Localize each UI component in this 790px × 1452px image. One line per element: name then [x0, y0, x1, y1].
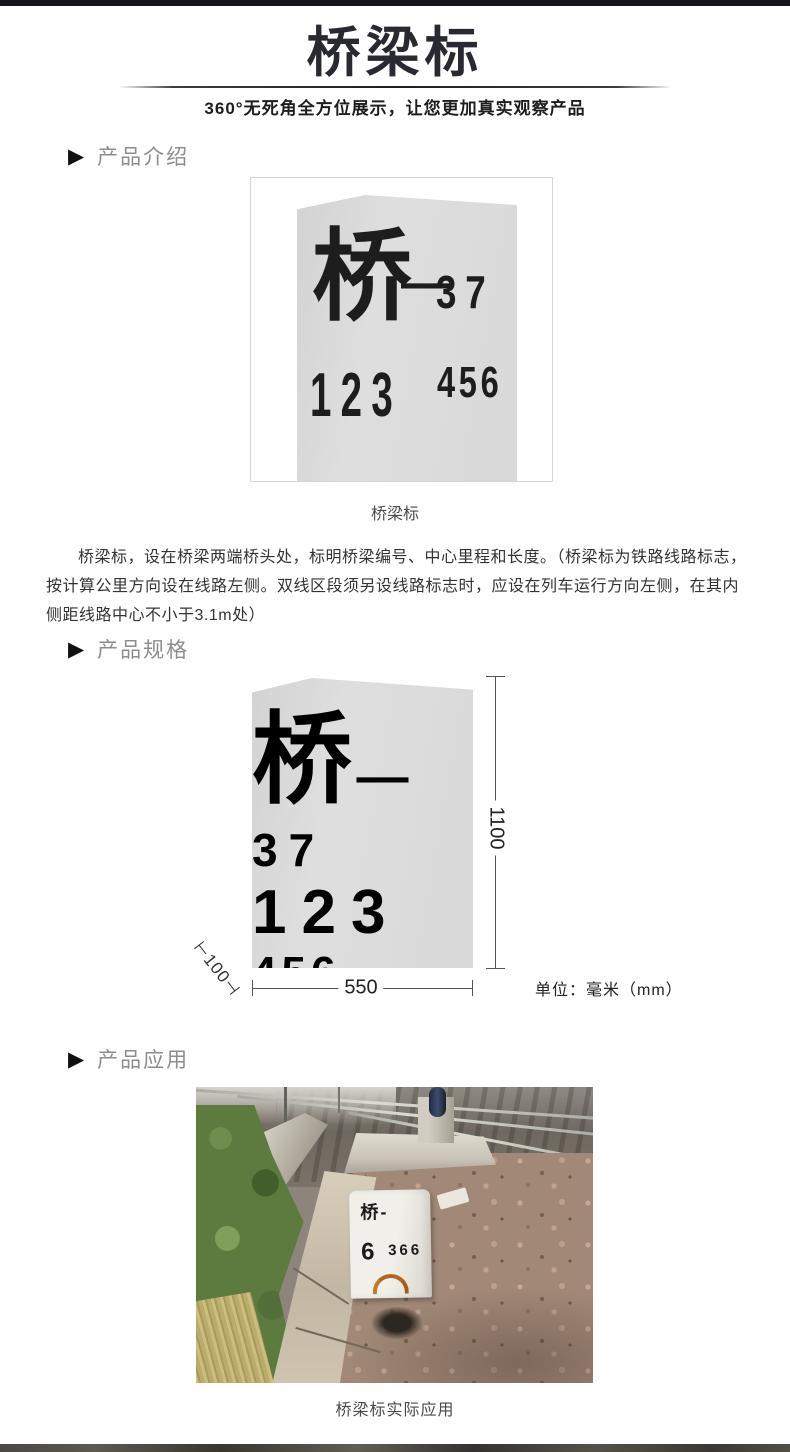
height-dimension-tick-top [486, 676, 505, 677]
photo-marker-number-small: 366 [388, 1242, 422, 1258]
unit-label: 单位：毫米（mm） [535, 976, 683, 1000]
ground-shadow [372, 1307, 422, 1339]
signal-device [429, 1087, 446, 1117]
page-subtitle: 360°无死角全方位展示，让您更加真实观察产品 [0, 94, 790, 119]
bridge-marker-drawing: 桥 — 37 123 456 [297, 195, 517, 481]
bridge-marker-stone-photo: 桥- 6 366 [349, 1189, 432, 1298]
depth-dimension-value: ⊢100⊣ [189, 938, 244, 1000]
width-dimension-tick-right [472, 980, 473, 996]
section-label-spec: 产品规格 [97, 634, 189, 664]
marker-serial-number: 37 [252, 824, 325, 876]
bottom-divider-bar [0, 1444, 790, 1452]
section-header-application: ▶ 产品应用 [68, 1044, 189, 1074]
section-label-application: 产品应用 [97, 1044, 189, 1074]
height-dimension-tick-bottom [486, 968, 505, 969]
photo-marker-number: 6 [361, 1240, 375, 1264]
spec-marker-drawing: 桥 — 37 123 456 [252, 678, 473, 968]
marker-mileage-number: 123 [252, 878, 400, 947]
intro-caption: 桥梁标 [0, 500, 790, 524]
marker-mileage-number: 123 [310, 365, 402, 427]
section-marker-icon: ▶ [68, 146, 84, 167]
marker-dash: — [356, 748, 408, 806]
catenary-pole [284, 1087, 287, 1123]
width-dimension-tick-left [252, 980, 253, 996]
catenary-pole [338, 1087, 340, 1113]
section-label-intro: 产品介绍 [97, 141, 189, 171]
intro-description: 桥梁标，设在桥梁两端桥头处，标明桥梁编号、中心里程和长度。（桥梁标为铁路线路标志… [46, 543, 748, 630]
marker-mileage-decimal: 456 [437, 361, 502, 405]
section-header-spec: ▶ 产品规格 [68, 634, 189, 664]
top-divider-bar [0, 0, 790, 6]
title-divider [118, 86, 672, 88]
photo-marker-title: 桥- [360, 1203, 388, 1221]
marker-mileage-decimal: 456 [252, 948, 340, 997]
rust-stain [373, 1274, 409, 1295]
application-photo: 桥- 6 366 [196, 1087, 593, 1383]
marker-character: 桥 [252, 704, 352, 816]
intro-product-image: 桥 — 37 123 456 [250, 177, 553, 482]
section-marker-icon: ▶ [68, 639, 84, 660]
application-caption: 桥梁标实际应用 [0, 1396, 790, 1420]
section-marker-icon: ▶ [68, 1049, 84, 1070]
width-dimension-value: 550 [338, 976, 383, 1001]
marker-character: 桥 [312, 227, 412, 327]
height-dimension-value: 1100 [484, 800, 509, 855]
section-header-intro: ▶ 产品介绍 [68, 141, 189, 171]
product-detail-page: 桥梁标 360°无死角全方位展示，让您更加真实观察产品 ▶ 产品介绍 桥 — 3… [0, 0, 790, 1452]
page-title: 桥梁标 [0, 26, 790, 80]
marker-serial-number: 37 [436, 269, 495, 315]
